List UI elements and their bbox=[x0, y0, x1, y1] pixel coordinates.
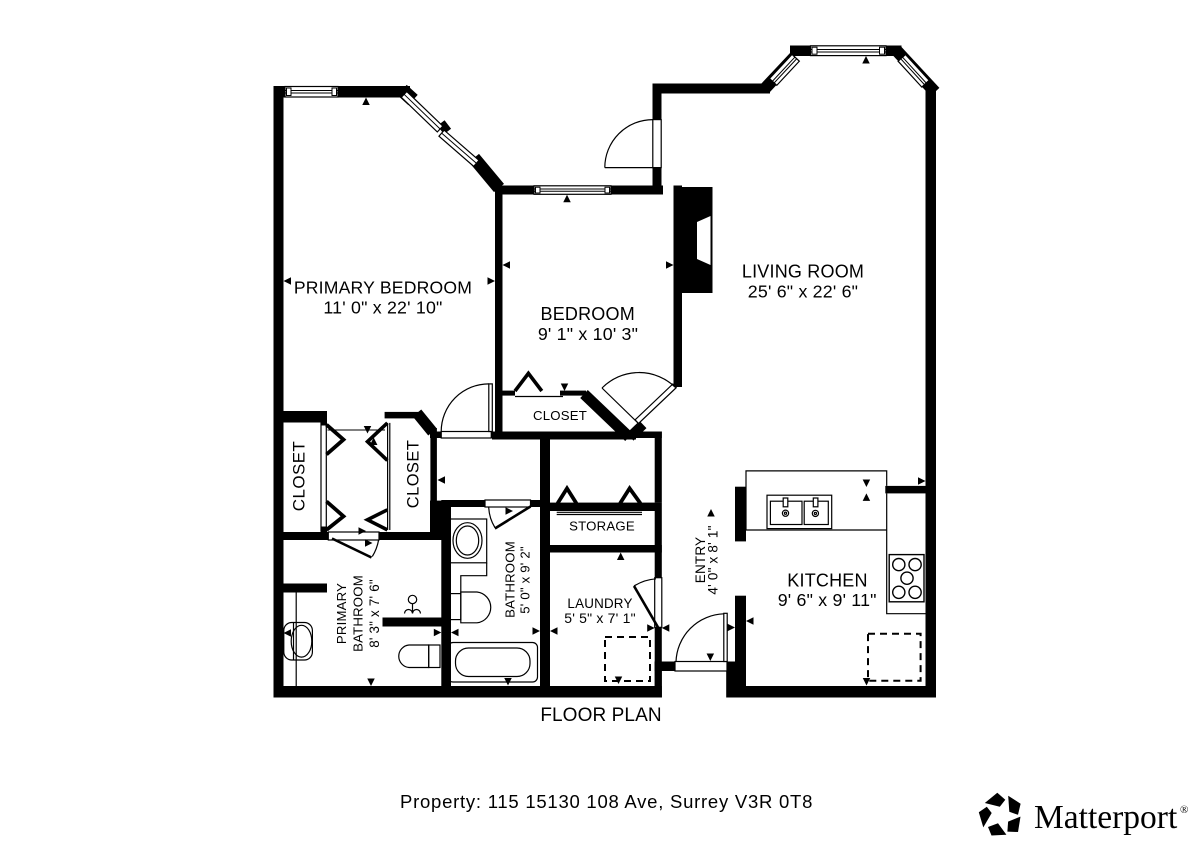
svg-text:8' 3" x 7' 6": 8' 3" x 7' 6" bbox=[367, 579, 382, 648]
svg-text:5' 0" x 9' 2": 5' 0" x 9' 2" bbox=[518, 546, 533, 614]
svg-text:BEDROOM: BEDROOM bbox=[540, 304, 634, 324]
svg-text:5' 5" x 7' 1": 5' 5" x 7' 1" bbox=[564, 610, 636, 626]
svg-text:STORAGE: STORAGE bbox=[569, 519, 635, 534]
svg-text:PRIMARY BEDROOM: PRIMARY BEDROOM bbox=[294, 278, 472, 298]
svg-text:9' 1" x 10' 3": 9' 1" x 10' 3" bbox=[538, 324, 638, 344]
svg-text:BATHROOM: BATHROOM bbox=[503, 541, 518, 618]
svg-text:9' 6" x 9' 11": 9' 6" x 9' 11" bbox=[778, 590, 877, 610]
svg-text:Property: 115 15130 108 Ave, S: Property: 115 15130 108 Ave, Surrey V3R … bbox=[400, 791, 813, 812]
svg-text:LAUNDRY: LAUNDRY bbox=[567, 596, 632, 611]
svg-text:KITCHEN: KITCHEN bbox=[787, 571, 867, 591]
svg-text:4' 0" x 8' 1": 4' 0" x 8' 1" bbox=[706, 525, 721, 594]
svg-text:BATHROOM: BATHROOM bbox=[351, 575, 366, 652]
svg-text:25' 6" x 22' 6": 25' 6" x 22' 6" bbox=[748, 282, 858, 302]
svg-text:PRIMARY: PRIMARY bbox=[334, 583, 349, 644]
svg-text:LIVING ROOM: LIVING ROOM bbox=[742, 262, 864, 282]
svg-text:CLOSET: CLOSET bbox=[533, 408, 587, 423]
svg-text:11' 0" x 22' 10": 11' 0" x 22' 10" bbox=[323, 298, 442, 318]
svg-text:CLOSET: CLOSET bbox=[290, 441, 309, 511]
svg-text:CLOSET: CLOSET bbox=[405, 440, 423, 508]
svg-text:®: ® bbox=[1180, 804, 1188, 816]
svg-text:Matterport: Matterport bbox=[1034, 799, 1178, 836]
svg-text:FLOOR PLAN: FLOOR PLAN bbox=[540, 705, 661, 726]
